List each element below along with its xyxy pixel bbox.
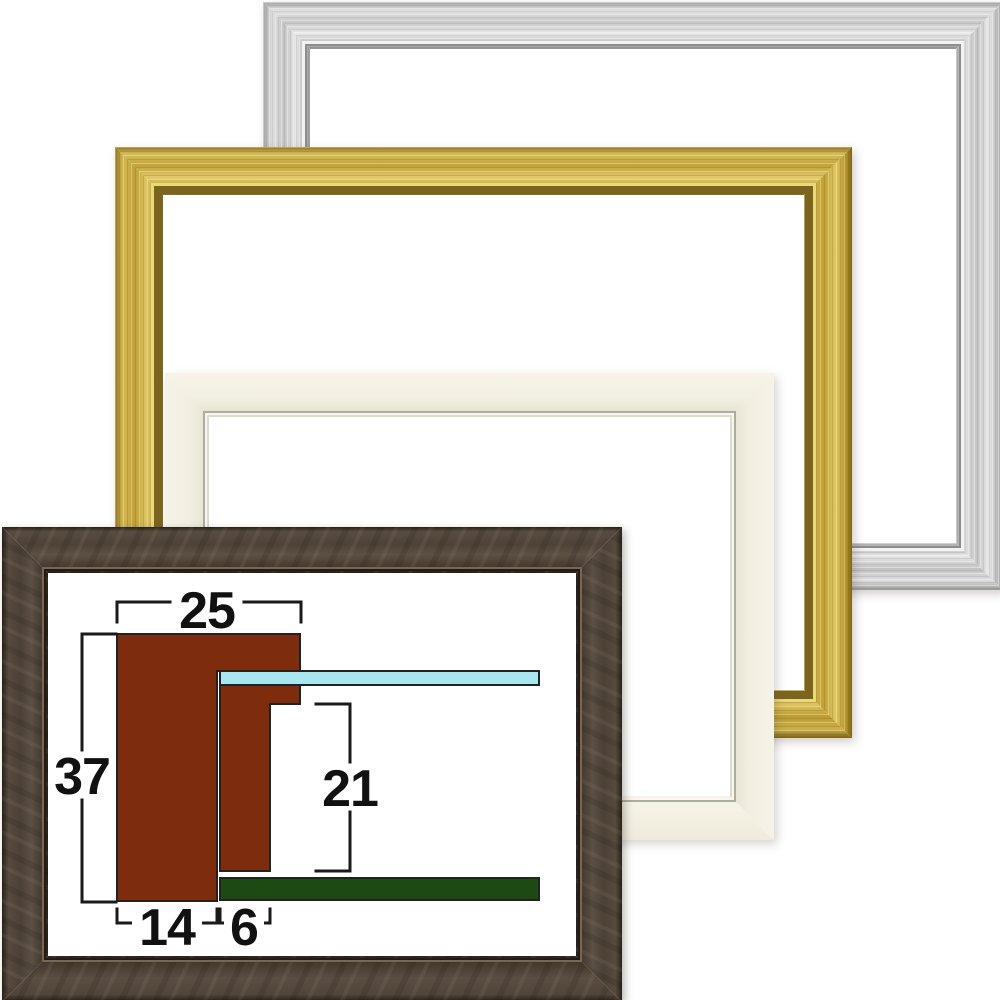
brown-frame-inner-lip bbox=[42, 567, 582, 962]
gold-frame-top-bar bbox=[115, 147, 852, 195]
brown-frame-bottom-bar bbox=[2, 956, 622, 1000]
product-image: 25 37 21 14 6 bbox=[0, 0, 1000, 1000]
silver-frame-right-bar bbox=[956, 2, 1000, 590]
silver-frame-top-bar bbox=[263, 2, 1000, 49]
brown-frame-right-bar bbox=[576, 527, 622, 1000]
brown-frame bbox=[2, 527, 622, 1000]
cream-frame-right-bar bbox=[730, 373, 774, 840]
gold-frame-right-bar bbox=[804, 147, 852, 738]
brown-frame-left-bar bbox=[2, 527, 48, 1000]
brown-frame-top-bar bbox=[2, 527, 622, 573]
cream-frame-top-bar bbox=[165, 373, 774, 417]
